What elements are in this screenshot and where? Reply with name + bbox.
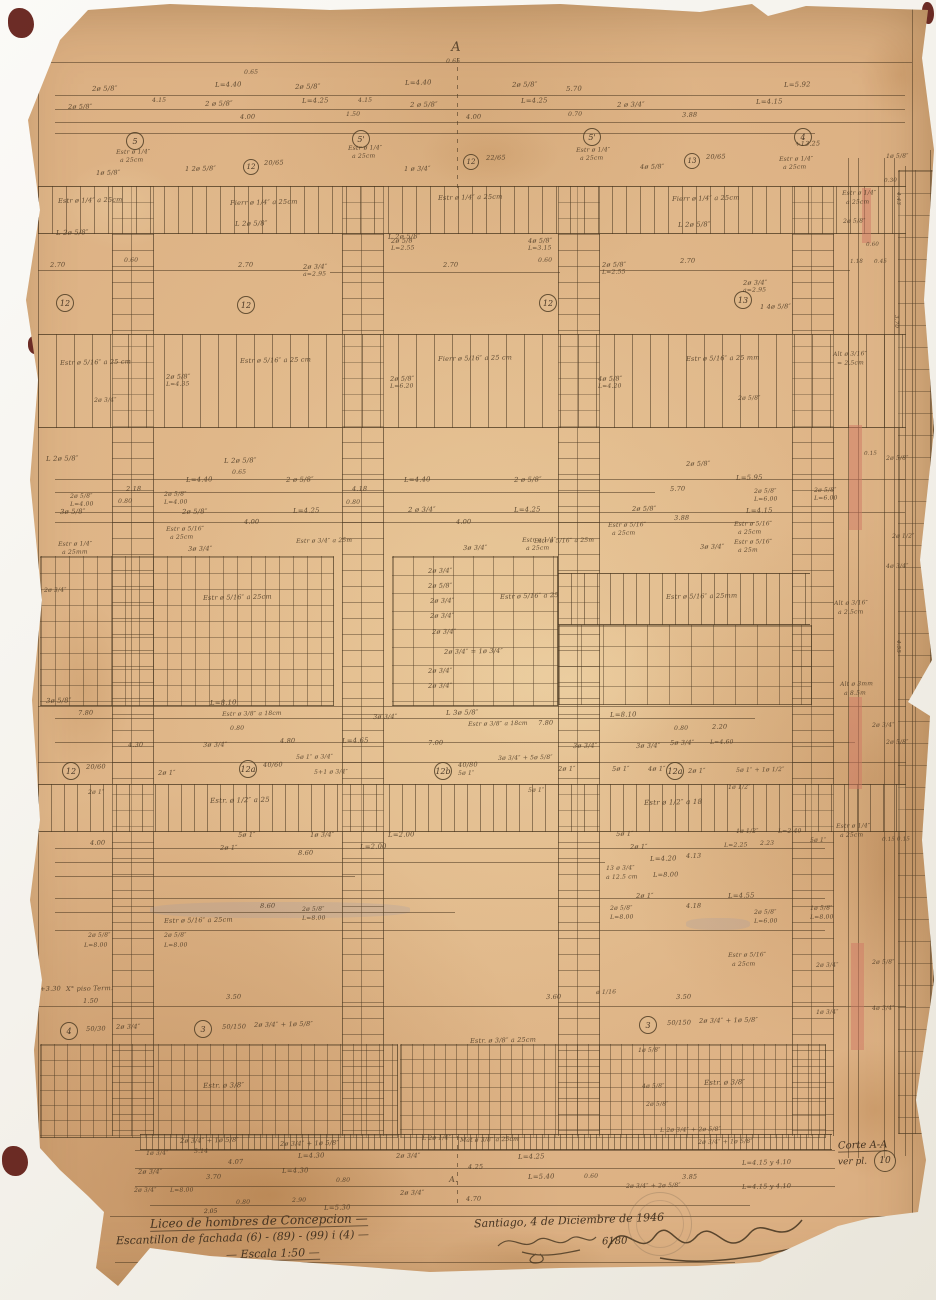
annotation: 2ø 3/4″	[430, 597, 455, 604]
annotation: 7.80	[78, 710, 93, 717]
annotation: 1ø 1/2″	[736, 829, 759, 835]
annotation: Estr ø 1/4″	[576, 147, 610, 154]
title-superscript: 2.05	[204, 1208, 218, 1215]
annotation: 0.60	[124, 258, 138, 264]
annotation: L 2ø 5/8″	[56, 229, 89, 236]
annotation: 2ø 5/8″	[738, 396, 761, 402]
annotation: 8.60	[298, 850, 313, 857]
annotation: L=8.10	[610, 711, 637, 718]
annotation: 4ø 5/8″	[598, 375, 623, 382]
annotation: 1ø 3/4″	[310, 831, 335, 838]
annotation: Estr ø 5/16″ a 25cm	[164, 917, 233, 925]
annotation: 4ø 3/4″	[872, 1006, 895, 1012]
dimension-line	[600, 270, 850, 271]
annotation: +3.30	[40, 986, 61, 993]
annotation: 4.18	[686, 903, 701, 910]
dimension-line	[55, 122, 905, 123]
section-cut-fill	[849, 697, 862, 789]
annotation: L 2ø 5/8″	[678, 221, 711, 228]
section-cut-fill	[849, 425, 862, 530]
annotation: a 25cm	[580, 156, 603, 162]
annotation: 2 ø 3/4″	[408, 506, 436, 513]
annotation: 2.70	[443, 262, 458, 269]
annotation: L=4.20	[598, 384, 622, 390]
annotation: 0.60	[866, 243, 879, 249]
annotation: 2ø 1″	[688, 768, 706, 775]
dimension-line	[55, 522, 755, 523]
annotation: a 25cm	[352, 154, 375, 160]
vertical-line	[848, 158, 849, 1158]
dimension-line	[55, 898, 825, 899]
annotation: 2ø 1″	[158, 770, 176, 777]
annotation: L=8.00	[653, 871, 679, 878]
annotation: A	[451, 41, 461, 54]
annotation: a=2.95	[303, 272, 326, 278]
annotation: 2ø 3/4″	[743, 279, 768, 286]
annotation: 1 2ø 5/8″	[185, 165, 216, 172]
annotation: 2ø 5/8″	[295, 83, 321, 90]
annotation: 2ø 3/4″	[94, 398, 117, 404]
section-cut-fill	[851, 943, 864, 1050]
annotation: 1ø 3/4″	[816, 1010, 839, 1016]
annotation: L=4.40	[404, 476, 431, 483]
annotation: 5.70	[670, 486, 685, 493]
annotation: 2ø 1″	[220, 845, 238, 852]
annotation: 0.15 0.15	[882, 837, 910, 843]
annotation: 2ø 5/8″	[512, 81, 538, 88]
annotation: 2ø 5/8″	[68, 103, 93, 110]
annotation: A.	[449, 1176, 458, 1184]
annotation: L=4.00	[164, 500, 188, 506]
annotation: 2ø 3/4″	[816, 963, 839, 969]
dimension-line	[135, 1186, 835, 1187]
column-marker: 12a	[666, 762, 684, 780]
annotation: 2ø 1″	[558, 766, 576, 773]
stamp-mark	[628, 1192, 692, 1256]
annotation: 0.65	[232, 470, 246, 476]
annotation: Estr ø 1/4″	[348, 145, 382, 152]
annotation: ø 1/16	[596, 990, 616, 996]
annotation: 1ø 5/8″	[638, 1048, 661, 1054]
annotation: 2 ø 5/8″	[286, 476, 314, 483]
annotation: 3ø 5/8″	[46, 697, 72, 704]
annotation: 2.23	[760, 841, 774, 847]
annotation: Fierr ø 1/4″ a 25cm	[230, 199, 298, 207]
vertical-line	[912, 6, 913, 1214]
annotation: 2 ø 5/8″	[410, 101, 438, 108]
annotation: X° piso Term.	[66, 985, 113, 992]
annotation: 2ø 5/8″	[182, 508, 208, 515]
annotation: Estr ø 5/16″	[734, 539, 772, 546]
annotation: 0.15	[864, 452, 877, 458]
column-marker: 12	[237, 296, 255, 314]
annotation: 1ø 5/8″	[810, 906, 833, 912]
annotation: Estr ø 1/4″	[116, 149, 150, 156]
annotation: 7.00	[428, 740, 443, 747]
annotation: a 25cm	[783, 165, 806, 171]
annotation: 2ø 5/8″	[843, 219, 866, 225]
annotation: 2ø 5/8″	[602, 261, 627, 268]
annotation: 2ø 5/8″	[872, 960, 895, 966]
annotation: Estr ø 5/16″	[166, 526, 204, 533]
column-strip	[112, 186, 154, 1136]
annotation: 4.18	[352, 486, 367, 493]
annotation: 5ø 3/4″	[670, 739, 695, 746]
annotation: 2ø 5/8″	[632, 505, 657, 512]
annotation: 3ø 3/4″	[188, 545, 213, 552]
annotation: L=6.20	[390, 384, 414, 390]
annotation: 1 ø 3/4″	[404, 165, 431, 172]
column-strip	[342, 186, 384, 1136]
annotation: 2ø 5/8″	[391, 237, 416, 244]
section-plan-circle: 10	[874, 1150, 896, 1172]
annotation: L=6.00	[754, 497, 778, 503]
annotation: 3ø 3/4″	[463, 544, 488, 551]
crosshatch-grid	[400, 1044, 826, 1138]
annotation: 3ø 5/8″	[60, 508, 86, 515]
annotation: 3ø 3/4″	[700, 543, 725, 550]
annotation: 2ø 3/4″ = 1ø 3/4″	[444, 648, 503, 656]
annotation: 4.80	[280, 738, 295, 745]
annotation: L=8.00	[610, 915, 634, 921]
annotation: Estr ø 3/8″ a 18cm	[222, 711, 282, 718]
annotation: L=4.25	[514, 506, 541, 513]
annotation: 4.25	[468, 1164, 483, 1171]
dimension-line	[55, 742, 855, 743]
annotation: L=4.35	[166, 382, 190, 388]
annotation: 2ø 5/8″	[886, 740, 909, 746]
annotation: 0.70	[568, 112, 582, 118]
annotation: Alt ø 3/16″	[833, 351, 867, 358]
annotation: 1.50	[83, 998, 98, 1005]
annotation: 4.00	[90, 840, 105, 847]
drawing-paper: 55'5'4121213121212131212a12b12a4332ø 5/8…	[0, 0, 936, 1300]
annotation: 2ø 3/4″	[303, 263, 328, 270]
annotation: Estr. ø 3/8″	[203, 1082, 244, 1090]
annotation: Alt ø 3/16″	[834, 600, 868, 607]
annotation: a 25cm	[840, 833, 863, 839]
annotation: 7.80	[538, 720, 553, 727]
annotation: L=5.92	[784, 81, 811, 88]
annotation: 0.60	[584, 1174, 598, 1180]
annotation: 3.70	[206, 1174, 221, 1181]
crosshatch-grid	[392, 556, 558, 706]
annotation: L 2ø 5/8″	[46, 455, 79, 462]
annotation: 2ø 3/4″	[138, 1168, 163, 1175]
annotation: 1 4ø 5/8″	[760, 303, 791, 310]
annotation: Estr ø 5/16″ a 25 cm	[240, 357, 311, 365]
annotation: Estr ø 3/4″ a 25m	[296, 538, 352, 545]
annotation: 2ø 3/4″	[430, 612, 455, 619]
annotation: L=4.15	[756, 98, 783, 105]
annotation: L=2.25	[724, 843, 748, 849]
annotation: L=6.00	[754, 919, 778, 925]
annotation: 4.30	[128, 742, 143, 749]
annotation: 13 ø 3/4″	[606, 865, 635, 872]
annotation: 5ø 1″	[612, 766, 630, 773]
annotation: 2ø 3/4″ + 1ø 5/8″	[254, 1021, 313, 1029]
column-marker: 13	[684, 153, 700, 169]
annotation: 20/60	[86, 764, 106, 771]
annotation: 3.88	[682, 112, 697, 119]
annotation: L=4.40	[215, 81, 242, 88]
annotation: 0.80	[236, 1200, 250, 1206]
dimension-line	[55, 876, 355, 877]
annotation: 4.43	[895, 192, 901, 205]
annotation: 4ø 1″	[648, 766, 666, 773]
annotation: Estr ø 5/16″ a 25 mm	[686, 354, 760, 362]
dimension-line	[135, 1150, 835, 1151]
annotation: 2ø 1″	[636, 893, 654, 900]
annotation: 2ø 5/8″	[70, 494, 93, 500]
annotation: 2ø 5/8″	[164, 933, 187, 939]
annotation: Estr ø 1/4″	[836, 823, 870, 830]
dimension-line	[38, 62, 912, 63]
annotation: Estr ø 5/16″ a 25	[500, 592, 559, 601]
annotation: a 25cm	[170, 535, 193, 541]
annotation: 3ø 3/4″	[373, 713, 398, 720]
annotation: 2ø 3/4″	[134, 1188, 157, 1194]
annotation: Estr ø 5/16″ a 25m	[534, 538, 594, 545]
annotation: 0.80	[230, 726, 244, 732]
annotation: 0.65	[244, 70, 258, 76]
annotation: 5ø 1″	[616, 831, 634, 838]
annotation: Mat ø 3/8″ a 25cm	[460, 1137, 519, 1144]
annotation: Estr. ø 3/8″ a 25cm	[470, 1037, 536, 1045]
column-marker: 12b	[434, 762, 452, 780]
annotation: Estr ø 5/16″	[728, 952, 766, 959]
annotation: L=8.00	[302, 916, 326, 922]
annotation: 4.00	[244, 519, 259, 526]
annotation: 2ø 5/8″	[92, 85, 118, 92]
annotation: L=4.40	[186, 476, 213, 483]
annotation: 2ø 1/2″	[892, 534, 915, 540]
annotation: 22/65	[486, 155, 506, 162]
column-marker: 3	[194, 1020, 212, 1038]
annotation: L=2.55	[602, 270, 626, 276]
annotation: L=4.60	[710, 740, 734, 746]
annotation: = 2.5cm	[837, 360, 864, 367]
annotation: a 25cm	[732, 962, 755, 968]
annotation: 2ø 5/8″	[302, 907, 325, 913]
annotation: 4.55	[895, 640, 901, 653]
annotation: L=4.25	[521, 97, 548, 104]
vertical-line	[457, 1136, 458, 1206]
annotation: 2ø 5/8″	[390, 375, 415, 382]
annotation: 2.70	[50, 262, 65, 269]
annotation: 3ø 3/4″	[636, 742, 661, 749]
column-marker: 5'	[583, 128, 601, 146]
section-reference: ver pl.	[838, 1157, 867, 1168]
annotation: 5.70	[566, 86, 582, 93]
annotation: 2ø 3/4″	[432, 628, 457, 635]
annotation: 1ø 3/4″	[146, 1151, 169, 1157]
annotation: 5ø 1″ ø 3/4″	[296, 754, 333, 761]
annotation: 4.00	[456, 519, 471, 526]
annotation: L=4.15 y 4.10	[742, 1183, 791, 1191]
annotation: 2.90	[292, 1198, 306, 1204]
annotation: Estr. ø 1/2″ a 25	[210, 797, 270, 805]
annotation: L=2.00	[388, 831, 415, 838]
annotation: Alt ø 3mm	[840, 681, 873, 688]
annotation: 2ø 3/4″	[428, 667, 453, 674]
annotation: 2.70	[238, 262, 253, 269]
column-marker: 3	[639, 1016, 657, 1034]
annotation: Estr ø 1/4″	[58, 541, 92, 548]
annotation: 3.70	[893, 315, 899, 328]
annotation: 3.60	[546, 994, 561, 1001]
annotation: 2ø 5/8″	[686, 460, 711, 467]
annotation: 2ø 5/8″	[814, 488, 837, 494]
dimension-line	[55, 479, 905, 480]
annotation: 2ø 5/8″	[164, 492, 187, 498]
annotation: 2ø 3/4″	[872, 723, 895, 729]
annotation: a 25m	[738, 548, 758, 554]
annotation: 2ø 5/8″	[886, 456, 909, 462]
annotation: 4ø 5/8″	[640, 163, 665, 170]
annotation: L=5.40	[528, 1173, 555, 1180]
annotation: L=4.25	[293, 507, 320, 514]
annotation: 1.18	[850, 260, 863, 266]
annotation: 2ø 3/4″ + 2ø 5/8″	[626, 1183, 681, 1190]
column-marker: 12	[463, 154, 479, 170]
annotation: Fierr ø 5/16″ a 25 cm	[438, 354, 512, 362]
annotation: 2ø 5/8″	[166, 373, 191, 380]
annotation: 2ø 3/4″	[396, 1152, 421, 1159]
annotation: 0.30	[884, 179, 897, 185]
annotation: 2 ø 5/8″	[514, 476, 542, 483]
annotation: 0.65	[446, 59, 460, 65]
column-marker: 12	[243, 159, 259, 175]
drawing-layer: 55'5'4121213121212131212a12b12a4332ø 5/8…	[0, 0, 936, 1300]
annotation: a 25cm	[526, 546, 549, 552]
annotation: 2ø 5/8″	[754, 910, 777, 916]
annotation: 3ø 3/4″	[203, 741, 228, 748]
annotation: 2ø 5/8″	[754, 489, 777, 495]
annotation: 2 ø 5/8″	[205, 100, 233, 107]
dimension-line	[135, 1168, 835, 1169]
annotation: 2ø 3/4″ + 1ø 5/8″	[180, 1137, 239, 1145]
annotation: 50/150	[667, 1019, 691, 1026]
annotation: 2ø 3/4″ + 1ø 5/8″	[280, 1140, 339, 1148]
dimension-line	[38, 706, 906, 707]
faint-smudge	[686, 918, 750, 930]
annotation: 40/60	[263, 762, 283, 769]
annotation: L=4.55	[728, 892, 755, 899]
annotation: L 2ø 5/8″	[224, 457, 257, 464]
annotation: Estr ø 1/4″	[779, 156, 813, 163]
torn-backing-spot	[8, 8, 34, 38]
annotation: 3.50	[676, 994, 691, 1001]
annotation: 50/150	[222, 1023, 246, 1030]
dimension-line	[38, 270, 308, 271]
annotation: L=4.30	[298, 1152, 325, 1159]
dimension-line	[55, 848, 825, 849]
annotation: Estr ø 5/16″ a 25cm	[203, 594, 272, 602]
annotation: 2ø 5/8″	[610, 906, 633, 912]
annotation: 5ø 1″ + 1ø 1/2″	[736, 767, 785, 774]
annotation: 2 ø 3/4″	[617, 101, 645, 108]
annotation: Estr ø 1/4″ a 25cm	[438, 194, 503, 202]
annotation: a 25cm	[846, 200, 869, 206]
annotation: Estr ø 5/16″	[608, 522, 646, 529]
vertical-line	[905, 166, 906, 1156]
annotation: 1ø 5/8″	[96, 169, 121, 176]
annotation: 4.00	[240, 114, 255, 121]
annotation: L=4.25	[518, 1153, 545, 1160]
annotation: 2ø 1″	[88, 790, 105, 796]
dimension-line	[55, 133, 815, 134]
annotation: L 3ø 5/8″	[446, 709, 479, 716]
annotation: 4ø 5/8″	[642, 1084, 665, 1090]
annotation: 5ø 1″	[810, 838, 827, 844]
annotation: 5ø 1″	[528, 788, 545, 794]
annotation: 2ø 5/8″	[646, 1102, 669, 1108]
column-marker: 12a	[239, 760, 257, 778]
annotation: L=4.20	[650, 855, 677, 862]
column-marker: 5	[126, 132, 144, 150]
annotation: Fierr ø 1/4″ a 25cm	[672, 195, 740, 203]
annotation: a 2.5cm	[838, 609, 864, 616]
column-marker: 12	[56, 294, 74, 312]
dimension-line	[55, 95, 905, 96]
annotation: L=2.00	[360, 843, 387, 850]
signature-secondary	[492, 1228, 602, 1268]
annotation: L=4.30	[282, 1167, 309, 1174]
dimension-line	[55, 862, 605, 863]
column-marker: 12	[62, 762, 80, 780]
annotation: 5ø 1″	[458, 771, 475, 777]
annotation: 5+1 ø 3/4″	[314, 769, 348, 776]
annotation: 4.07	[228, 1159, 243, 1166]
annotation: 5.14	[194, 1149, 208, 1155]
annotation: 1ø 1/2″	[728, 785, 751, 791]
column-marker: 12	[539, 294, 557, 312]
annotation: 2ø 3/4″	[116, 1023, 141, 1030]
annotation: Estr ø 5/16″ a 25mm	[666, 593, 737, 601]
annotation: +13.25	[795, 140, 820, 147]
annotation: a 12.5 cm	[606, 874, 638, 881]
annotation: L=8.00	[170, 1188, 194, 1194]
annotation: L=5.95	[736, 474, 763, 481]
annotation: 2ø 5/8″	[88, 933, 111, 939]
dimension-line	[38, 1006, 906, 1007]
annotation: 50/30	[86, 1026, 106, 1033]
annotation: 4.70	[466, 1196, 481, 1203]
dimension-line	[55, 109, 905, 110]
annotation: 2ø 5/8″	[428, 582, 453, 589]
torn-backing-spot	[2, 1146, 28, 1176]
annotation: 0.45	[874, 260, 887, 266]
annotation: 3ø 3/4″	[573, 742, 598, 749]
annotation: L 2ø 3/4″ + 2ø 5/8″	[660, 1127, 721, 1134]
annotation: 20/65	[264, 160, 284, 167]
annotation: 4.15	[358, 98, 372, 104]
column-marker: 4	[60, 1022, 78, 1040]
annotation: 2ø 3/4″ + 1ø 5/8″	[698, 1139, 753, 1146]
annotation: L=2.40	[778, 829, 802, 835]
annotation: 3.50	[226, 994, 241, 1001]
annotation: 4.13	[686, 853, 701, 860]
annotation: 1ø 5/8″	[886, 154, 909, 160]
annotation: 4.15	[152, 98, 166, 104]
annotation: 0.80	[336, 1178, 350, 1184]
annotation: L=4.25	[302, 97, 329, 104]
annotation: L 2ø 5/8″	[235, 220, 268, 227]
annotation: L 2ø 1/4″	[422, 1135, 451, 1142]
annotation: 5ø 1″	[238, 832, 256, 839]
beam-stirrup-band	[38, 784, 906, 832]
